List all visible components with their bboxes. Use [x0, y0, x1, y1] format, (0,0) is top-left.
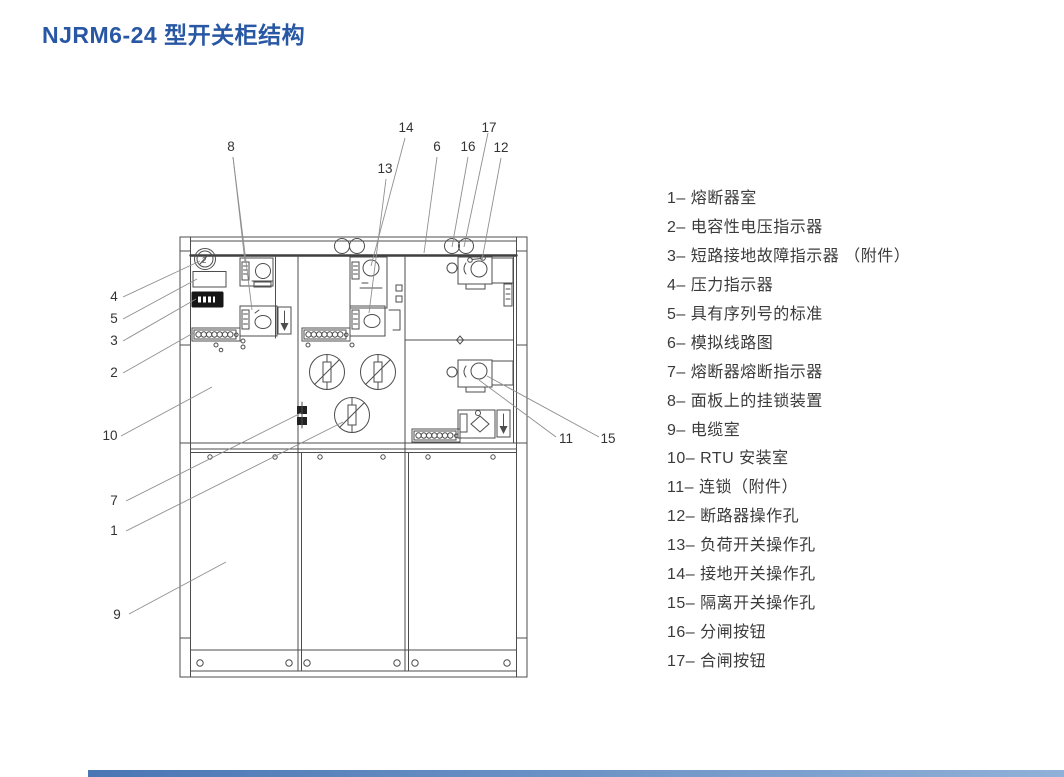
voltage-indicator-strip	[302, 328, 350, 341]
fuse-symbol	[335, 398, 370, 433]
callout-3: 3	[110, 333, 118, 348]
callout-5: 5	[110, 311, 118, 326]
fault-indicator-display	[192, 292, 223, 307]
callout-6: 6	[433, 139, 441, 154]
voltage-indicator-strip	[192, 328, 240, 341]
callout-labels: 8 13 14 6 16 17 12 4 5 3 2 10 7 1 9 11 1…	[102, 120, 615, 622]
callout-14: 14	[398, 120, 414, 135]
callout-9: 9	[113, 607, 121, 622]
callout-11: 11	[559, 431, 573, 446]
callout-4: 4	[110, 289, 118, 304]
left-section-details: 2	[192, 249, 291, 352]
left-lower-mechanism	[240, 306, 277, 349]
callout-12: 12	[493, 140, 508, 155]
pressure-gauge: 2	[195, 249, 216, 270]
cabinet-structure-diagram: 2	[0, 0, 1064, 777]
cabinet-frame	[180, 237, 527, 677]
left-upper-mechanism	[240, 258, 273, 287]
callout-1: 1	[110, 523, 118, 538]
callout-10: 10	[102, 428, 117, 443]
callout-2: 2	[110, 365, 118, 380]
callout-7: 7	[110, 493, 118, 508]
callout-13: 13	[377, 161, 392, 176]
gauge-digit: 2	[202, 256, 207, 265]
callout-8: 8	[227, 139, 235, 154]
fuse-symbol	[361, 355, 396, 390]
middle-lower-mechanism	[350, 306, 400, 336]
callout-15: 15	[600, 431, 615, 446]
right-middle-mechanism	[447, 360, 513, 392]
padlock-arrow	[278, 307, 291, 334]
page: NJRM6-24 型开关柜结构 1– 熔断器室 2– 电容性电压指示器 3– 短…	[0, 0, 1064, 777]
middle-section-details	[297, 257, 402, 433]
bottom-accent-bar	[88, 770, 1064, 777]
right-section-details	[405, 256, 514, 442]
right-upper-mechanism	[447, 256, 513, 289]
serial-plate	[193, 272, 226, 288]
callout-16: 16	[460, 139, 475, 154]
padlock-arrow	[497, 410, 510, 437]
fuse-symbol	[310, 355, 345, 390]
callout-17: 17	[481, 120, 496, 135]
voltage-indicator-strip	[412, 429, 460, 442]
label-tag	[504, 284, 512, 306]
middle-upper-mechanism	[350, 257, 387, 308]
right-lower-mechanism	[458, 410, 495, 438]
